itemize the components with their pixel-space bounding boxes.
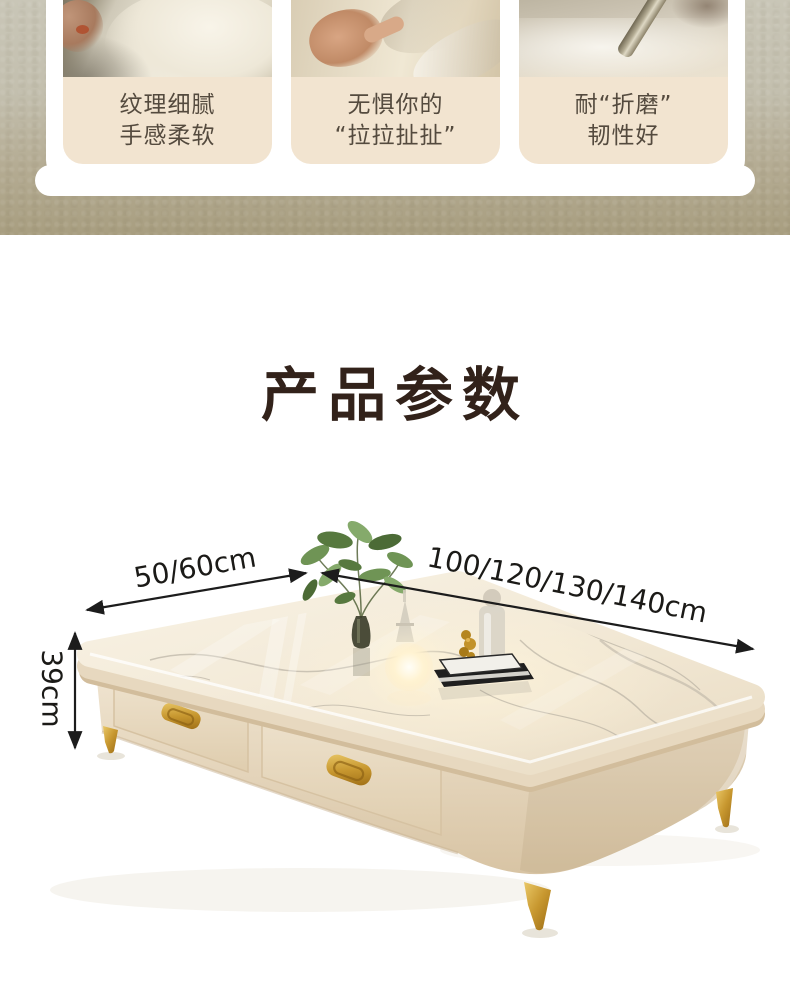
feature-photo-pulling-fabric (291, 0, 500, 77)
feature-caption: 纹理细腻 手感柔软 (63, 77, 272, 164)
feature-cards-tray-base (35, 165, 755, 196)
feature-photo-soft-fabric (63, 0, 272, 77)
table-leg-front-left (103, 726, 118, 753)
section-title: 产品参数 (0, 348, 790, 432)
height-dimension-label: 39cm (36, 629, 69, 749)
caption-line: 手感柔软 (120, 121, 216, 152)
glass-vase (352, 616, 371, 649)
fingernail-decor (76, 25, 89, 34)
caption-line: 韧性好 (588, 121, 660, 152)
feature-card-texture: 纹理细腻 手感柔软 (63, 0, 272, 164)
feature-card-durability: 耐“折磨” 韧性好 (519, 0, 728, 164)
table-leg-rear-right (716, 788, 733, 827)
feature-card-pull-resistance: 无惧你的 “拉拉扯扯” (291, 0, 500, 164)
feature-photo-abrasion-test (519, 0, 728, 77)
product-detail-page: 纹理细腻 手感柔软 无惧你的 “拉拉扯扯” 耐“折磨” 韧性好 产品参数 (0, 0, 790, 1000)
glowing-ball-lamp (385, 643, 433, 691)
feature-caption: 耐“折磨” 韧性好 (519, 77, 728, 164)
caption-line: 纹理细腻 (120, 90, 216, 121)
caption-line: “拉拉扯扯” (335, 121, 457, 152)
table-leg-front-center (524, 882, 551, 930)
caption-line: 无惧你的 (348, 90, 444, 121)
feature-caption: 无惧你的 “拉拉扯扯” (291, 77, 500, 164)
caption-line: 耐“折磨” (575, 90, 673, 121)
